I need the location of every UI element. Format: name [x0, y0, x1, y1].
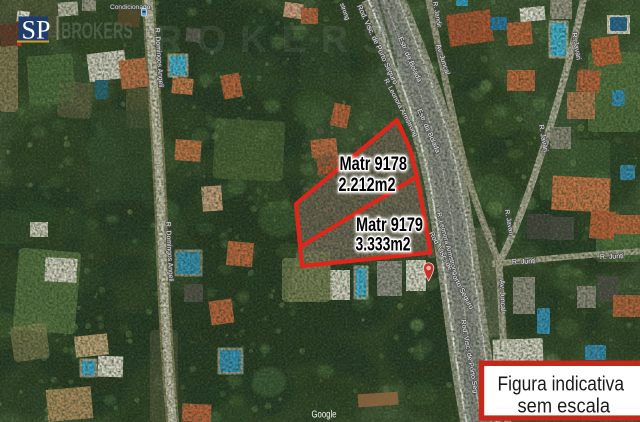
svg-text:2.212m2: 2.212m2 — [339, 175, 396, 196]
svg-text:R. Junti: R. Junti — [512, 258, 536, 266]
svg-text:Figura indicativa: Figura indicativa — [498, 372, 625, 395]
svg-text:ROKERS: ROKERS — [155, 19, 402, 61]
svg-text:3.333m2: 3.333m2 — [356, 235, 411, 256]
svg-text:sem escala: sem escala — [518, 394, 611, 417]
svg-text:R. Junti: R. Junti — [600, 253, 624, 261]
svg-text:Av. Juncal: Av. Juncal — [498, 280, 506, 312]
svg-text:Matr 9179: Matr 9179 — [356, 215, 423, 236]
svg-text:Matr 9178: Matr 9178 — [340, 154, 408, 175]
svg-text:SP: SP — [22, 16, 51, 45]
svg-text:Google: Google — [312, 410, 337, 421]
